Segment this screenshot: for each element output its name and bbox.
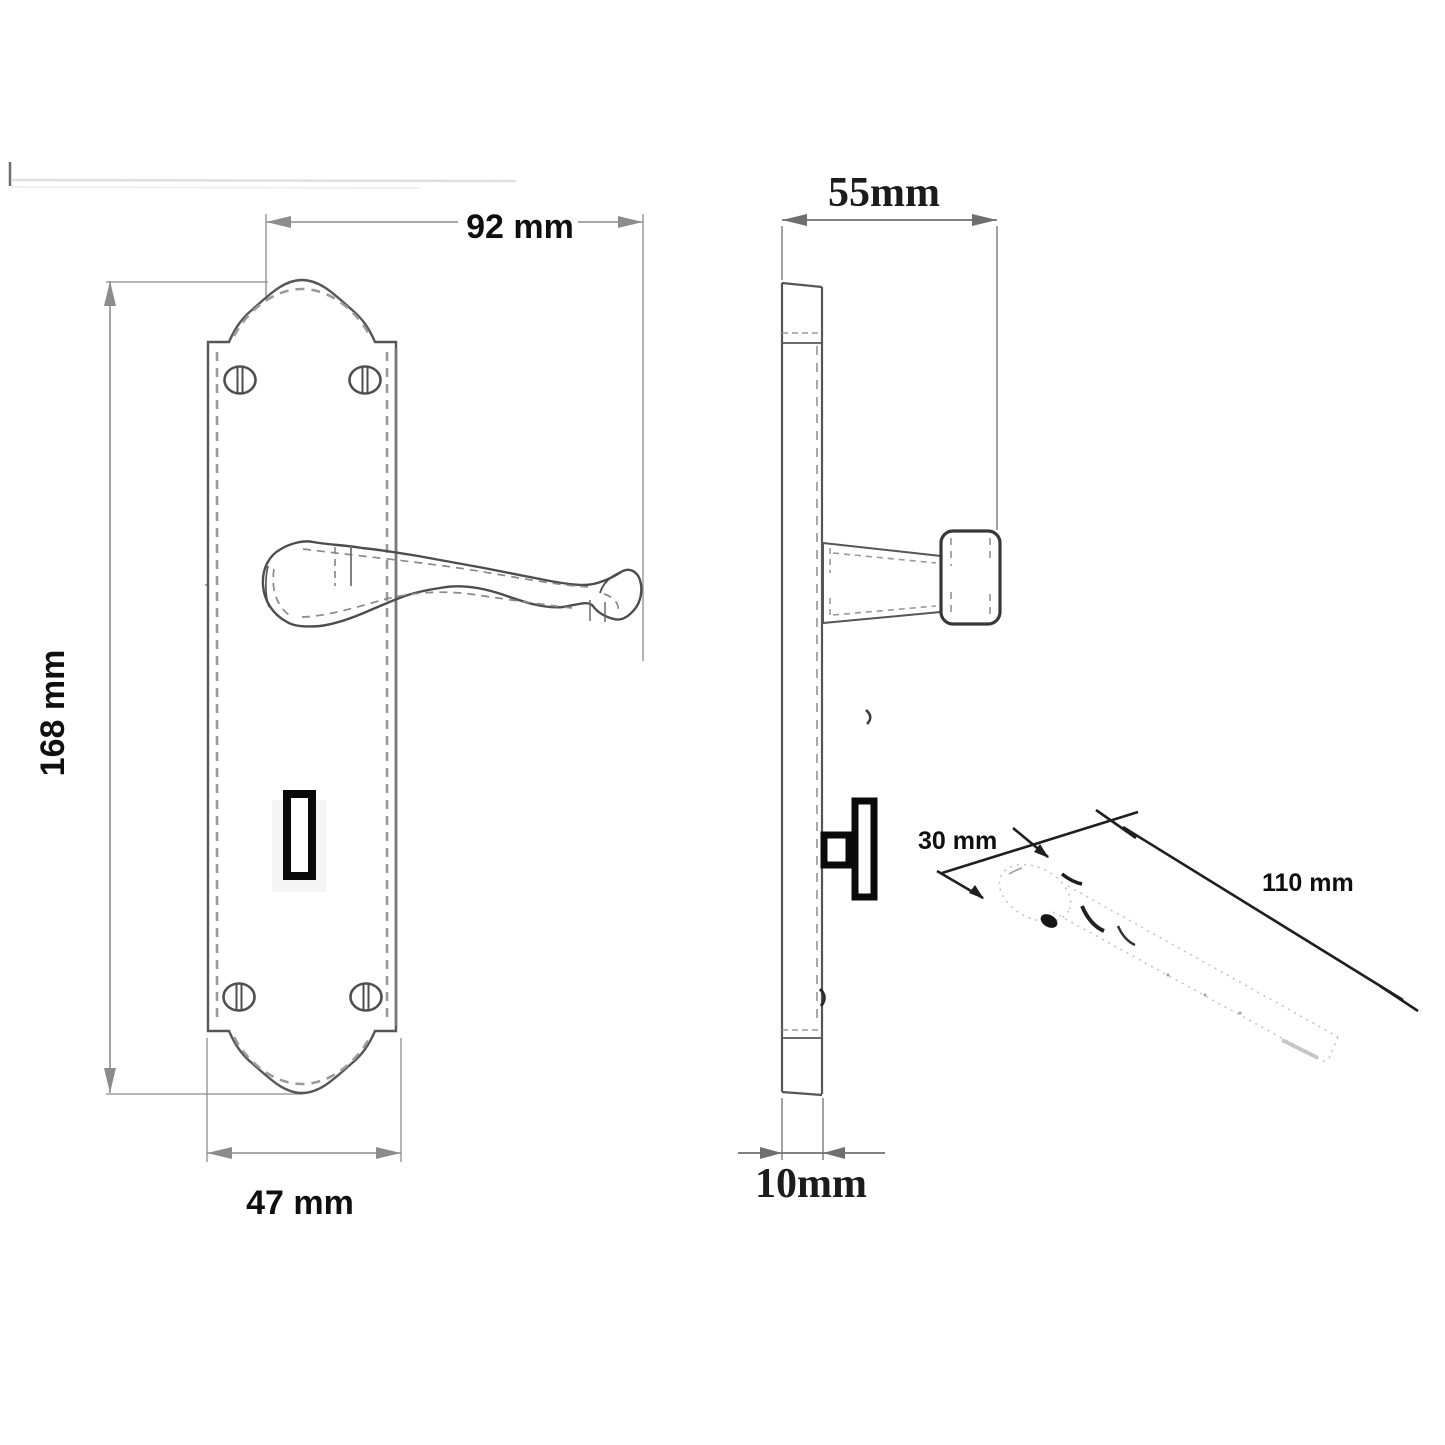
arrow-icon [969,885,984,899]
arrow-right-icon [618,216,643,228]
technical-drawing-svg: 92 mm 168 mm 47 mm [0,0,1445,1445]
screw-icon [350,367,381,394]
lever-dashed-tip [604,594,618,612]
side-plate-bottom-cap [782,1092,822,1095]
lever-grip-end-profile [941,531,1000,624]
spindle-dark-arc-2 [1118,926,1135,945]
screw-icon [225,367,256,394]
keyhole-icon [287,794,312,876]
screw-icon [224,984,255,1011]
side-view: 55mm [738,170,1000,1207]
backplate-outline [208,280,396,1093]
side-lever [823,531,1000,624]
arrow-up-icon [104,281,116,306]
spindle-dot [1204,994,1207,997]
arrow-left-icon [207,1147,232,1159]
spindle-dark-mark [1062,874,1082,884]
arrow-left-icon [760,1147,782,1159]
spindle-dark-blob [1038,911,1060,930]
front-backplate [208,280,396,1093]
thumbturn-icon [824,801,874,897]
dim-label-47mm: 47 mm [246,1184,354,1222]
spindle-end-dotted [1327,1037,1338,1063]
artifact-line-2 [11,187,420,188]
spindle-view: 30 mm 110 mm [918,810,1418,1063]
scan-artifact [10,162,516,188]
spindle-end-shade [1282,1040,1318,1058]
spindle-dot [1167,974,1170,977]
spindle-hub-dotted [990,853,1081,933]
dimension-30mm [937,812,1138,899]
dim-label-30mm: 30 mm [918,827,997,855]
dimension-110mm [1096,810,1418,1011]
artifact-line [11,180,516,181]
arrow-left-icon [782,214,807,226]
stray-mark [866,710,870,724]
spindle-dark-arc [1082,906,1104,931]
arrow-right-icon [376,1147,401,1159]
spindle-top-dotted [1068,886,1338,1037]
dimension-55mm [782,214,997,530]
arrow-left-icon [266,216,291,228]
arrow-down-icon [104,1068,116,1093]
dimension-10mm [738,1098,885,1160]
dim-label-168mm: 168 mm [34,650,72,777]
dim-label-55mm: 55mm [828,170,940,216]
arrow-right-icon [823,1147,845,1159]
drawing-canvas: 92 mm 168 mm 47 mm [0,0,1445,1445]
thumbturn-bar [855,801,874,897]
thumbturn-stem [824,835,849,865]
dim-label-10mm: 10mm [755,1161,867,1207]
side-plate [782,283,870,1095]
spindle-speck [1009,868,1022,874]
dim-label-92mm: 92 mm [466,208,574,246]
tick-right [1380,986,1418,1011]
dim-line [1123,827,1403,1000]
spindle-dot [1239,1012,1242,1015]
front-view: 92 mm 168 mm 47 mm [34,208,643,1222]
side-plate-top-cap [782,283,822,287]
arrow-right-icon [972,214,997,226]
screw-icon [351,984,382,1011]
dim-label-110mm: 110 mm [1262,869,1354,897]
